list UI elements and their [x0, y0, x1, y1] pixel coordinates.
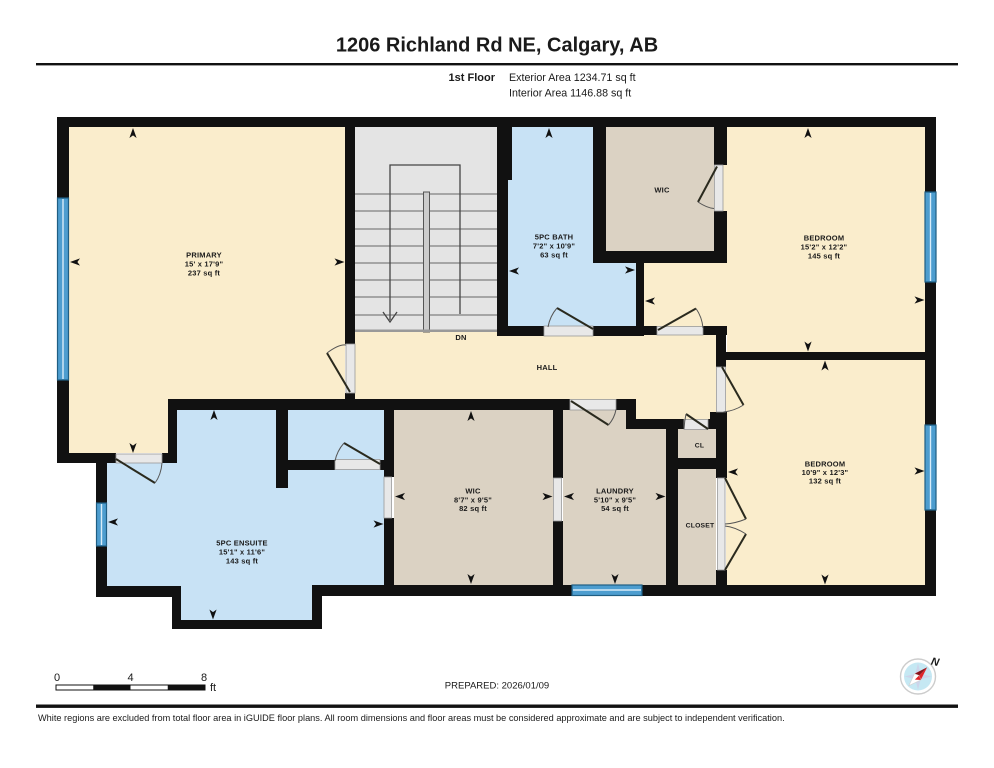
svg-text:N: N — [930, 656, 941, 670]
svg-text:5PC ENSUITE: 5PC ENSUITE — [216, 539, 267, 548]
svg-text:15' x 17'9": 15' x 17'9" — [185, 260, 224, 269]
svg-text:15'2" x 12'2": 15'2" x 12'2" — [801, 243, 848, 252]
svg-text:White regions are excluded fro: White regions are excluded from total fl… — [38, 713, 785, 723]
svg-text:5PC BATH: 5PC BATH — [535, 233, 574, 242]
svg-text:145 sq ft: 145 sq ft — [808, 252, 841, 261]
svg-text:BEDROOM: BEDROOM — [804, 234, 845, 243]
svg-text:63 sq ft: 63 sq ft — [540, 251, 568, 260]
svg-text:CLOSET: CLOSET — [686, 523, 715, 530]
svg-text:1206 Richland Rd NE, Calgary,: 1206 Richland Rd NE, Calgary, AB — [336, 35, 658, 57]
svg-text:CL: CL — [695, 443, 704, 450]
svg-text:WIC: WIC — [654, 186, 670, 195]
svg-text:HALL: HALL — [537, 363, 558, 372]
svg-text:4: 4 — [127, 672, 133, 684]
svg-text:WIC: WIC — [465, 487, 481, 496]
svg-text:237 sq ft: 237 sq ft — [188, 269, 221, 278]
svg-text:DN: DN — [455, 333, 466, 342]
svg-text:PREPARED: 2026/01/09: PREPARED: 2026/01/09 — [445, 681, 549, 692]
svg-text:132 sq ft: 132 sq ft — [809, 477, 842, 486]
svg-text:143 sq ft: 143 sq ft — [226, 557, 259, 566]
svg-text:PRIMARY: PRIMARY — [186, 251, 222, 260]
svg-text:54 sq ft: 54 sq ft — [601, 504, 629, 513]
svg-text:Interior Area 1146.88 sq ft: Interior Area 1146.88 sq ft — [509, 88, 631, 100]
svg-text:82 sq ft: 82 sq ft — [459, 504, 487, 513]
svg-text:ft: ft — [210, 682, 216, 694]
svg-text:1st Floor: 1st Floor — [449, 72, 496, 84]
svg-text:LAUNDRY: LAUNDRY — [596, 487, 634, 496]
svg-text:0: 0 — [54, 672, 60, 684]
svg-text:8: 8 — [201, 672, 207, 684]
svg-text:7'2" x 10'9": 7'2" x 10'9" — [533, 242, 576, 251]
svg-text:15'1" x 11'6": 15'1" x 11'6" — [219, 548, 265, 557]
svg-text:Exterior Area 1234.71 sq ft: Exterior Area 1234.71 sq ft — [509, 72, 636, 84]
